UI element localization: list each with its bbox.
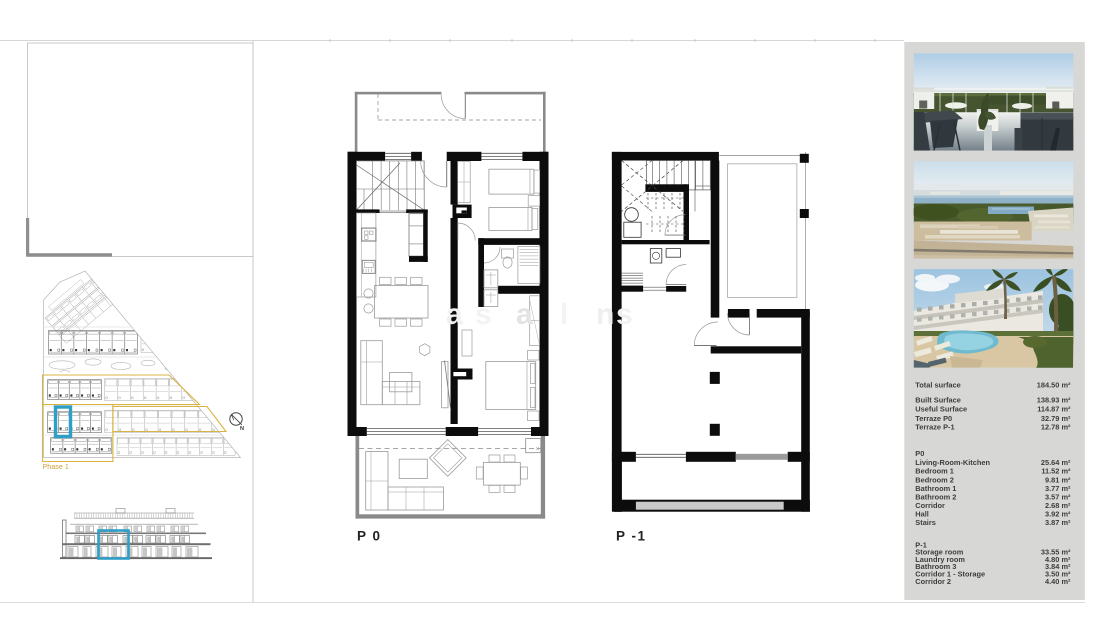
svg-text:9.81 m²: 9.81 m² — [1045, 476, 1071, 485]
svg-text:Corridor 2: Corridor 2 — [915, 577, 951, 586]
svg-text:Terraze P-1: Terraze P-1 — [915, 422, 954, 431]
svg-text:P 0: P 0 — [357, 529, 382, 544]
svg-text:s: s — [475, 298, 492, 331]
svg-text:l: l — [560, 298, 568, 331]
svg-text:Stairs: Stairs — [915, 518, 936, 527]
svg-text:Useful Surface: Useful Surface — [915, 405, 967, 414]
svg-text:Built Surface: Built Surface — [915, 396, 961, 405]
svg-text:Living-Room-Kitchen: Living-Room-Kitchen — [915, 458, 990, 467]
svg-text:184.50 m²: 184.50 m² — [1037, 381, 1071, 390]
svg-text:Total surface: Total surface — [915, 381, 960, 390]
svg-text:P -1: P -1 — [616, 529, 647, 544]
svg-text:P0: P0 — [915, 449, 924, 458]
svg-text:12.78 m²: 12.78 m² — [1041, 422, 1071, 431]
svg-text:114.87 m²: 114.87 m² — [1037, 405, 1071, 414]
svg-text:a: a — [516, 298, 533, 331]
svg-text:138.93 m²: 138.93 m² — [1037, 396, 1071, 405]
svg-text:N: N — [240, 426, 244, 432]
svg-text:Bedroom 1: Bedroom 1 — [915, 467, 954, 476]
svg-text:3.87 m²: 3.87 m² — [1045, 518, 1071, 527]
svg-text:25.64 m²: 25.64 m² — [1041, 458, 1071, 467]
svg-text:11.52 m²: 11.52 m² — [1041, 467, 1071, 476]
svg-text:Bedroom 2: Bedroom 2 — [915, 476, 954, 485]
svg-text:4.40 m²: 4.40 m² — [1045, 577, 1071, 586]
svg-text:Phase 1: Phase 1 — [43, 462, 69, 471]
svg-text:s: s — [616, 298, 633, 331]
svg-text:a: a — [446, 298, 463, 331]
svg-text:n: n — [596, 298, 614, 331]
